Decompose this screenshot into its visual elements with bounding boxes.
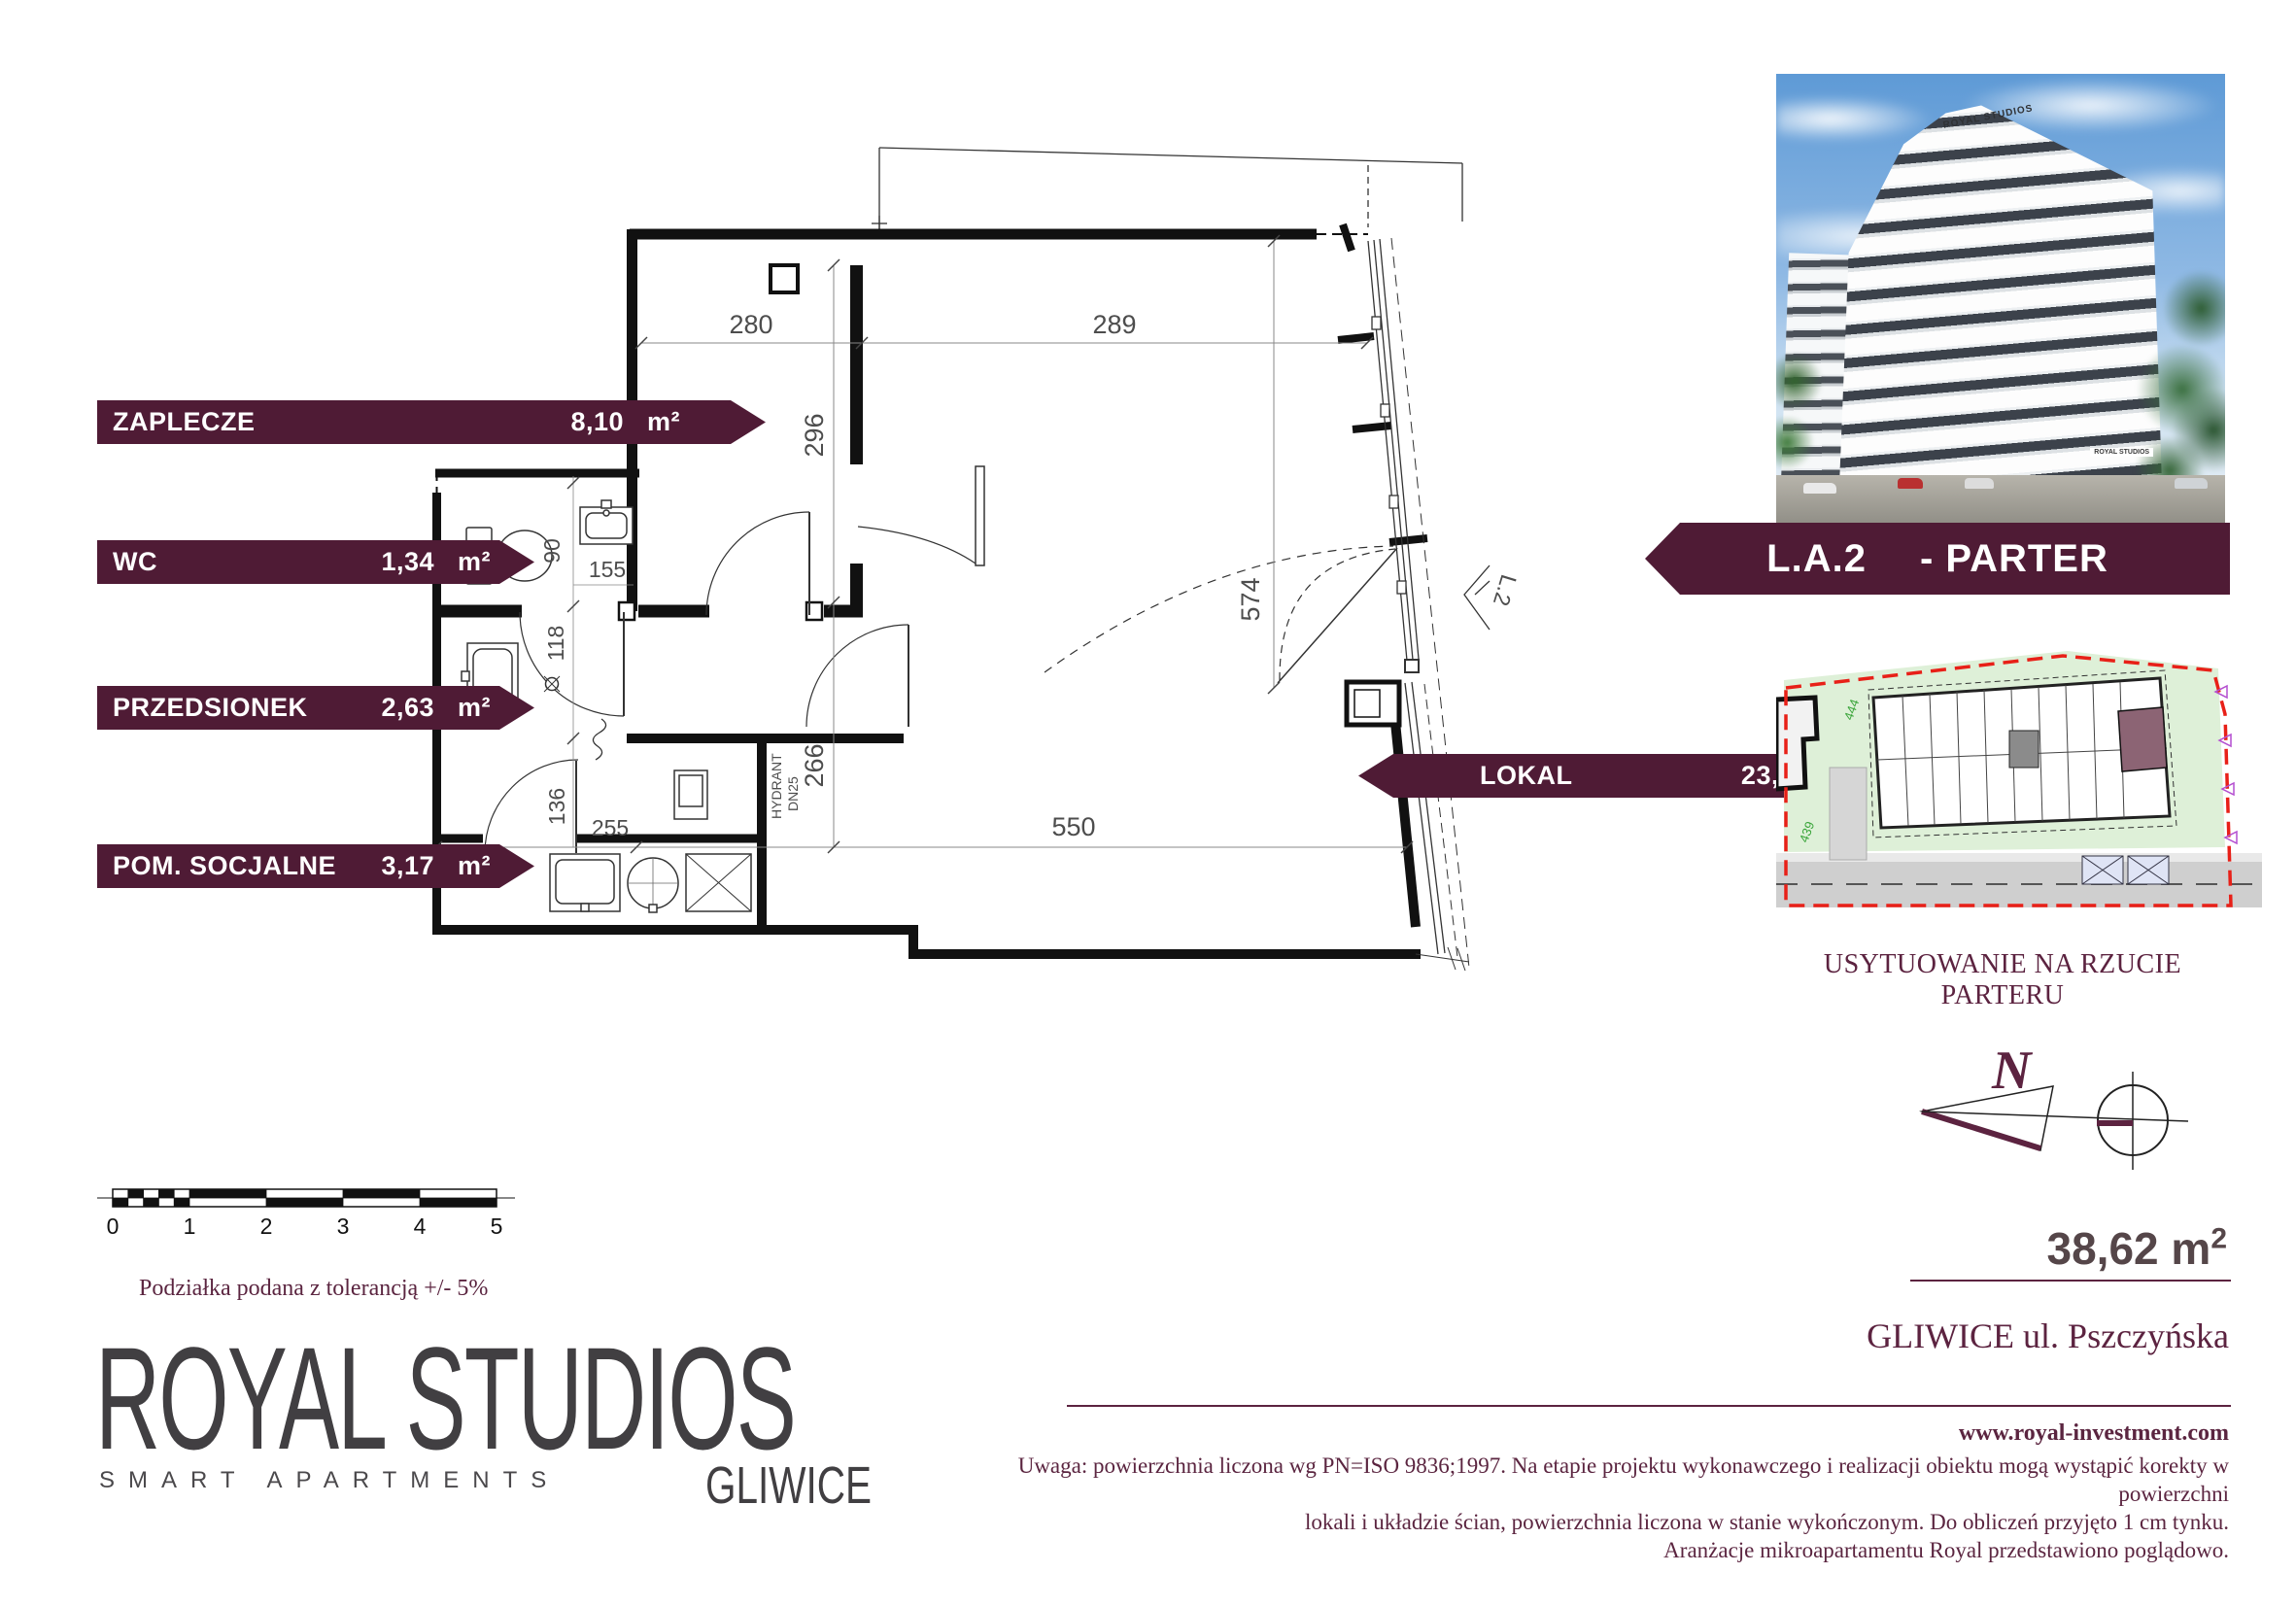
disclaimer-line: Uwaga: powierzchnia liczona wg PN=ISO 98…: [1005, 1452, 2229, 1508]
disclaimer-line: lokali i układzie ścian, powierzchnia li…: [1005, 1508, 2229, 1536]
floor-plan: 280 289 296 266 574 90 155 118 136 255 5…: [389, 126, 1603, 1001]
dim-118: 118: [543, 626, 568, 662]
room-label: ZAPLECZE: [97, 407, 256, 437]
scale-tick: 0: [107, 1214, 120, 1239]
tree: [1776, 335, 1830, 489]
trees: [2113, 241, 2226, 511]
entrance-marker: L.2: [1464, 565, 1522, 630]
room-unit: m²: [647, 407, 680, 437]
logo-tagline: SMART APARTMENTS: [99, 1467, 560, 1494]
dim-296: 296: [800, 413, 829, 457]
logo-royal-studios: ROYAL STUDIOS: [95, 1325, 795, 1471]
room-label: LOKAL: [1480, 761, 1572, 791]
dim-280: 280: [729, 310, 772, 339]
terrace-outline: [872, 148, 1462, 231]
pavement: [1776, 475, 2225, 525]
total-area-sup: 2: [2210, 1223, 2227, 1255]
room-area: 1,34: [381, 547, 434, 577]
glazing: [1368, 238, 1469, 971]
hydrant-size-label: DN25: [785, 776, 801, 811]
flyer-page: 280 289 296 266 574 90 155 118 136 255 5…: [0, 0, 2296, 1607]
entrance-label: L.2: [1489, 572, 1522, 609]
scale-tick: 4: [414, 1214, 427, 1239]
building-photo: ROYAL STUDIOS ROYAL STUDIOS: [1776, 74, 2225, 525]
address: GLIWICE ul. Pszczyńska: [1867, 1316, 2229, 1356]
disclaimer-line: Aranżacje mikroapartamentu Royal przedst…: [1005, 1536, 2229, 1564]
scale-tolerance-note: Podziałka podana z tolerancją +/- 5%: [139, 1276, 488, 1302]
website-link: www.royal-investment.com: [1959, 1420, 2229, 1447]
room-label: PRZEDSIONEK: [97, 693, 308, 723]
scale-bar: 0 1 2 3 4 5: [97, 1183, 515, 1253]
divider-line: [1067, 1405, 2231, 1407]
scale-bar-cells: [113, 1189, 497, 1207]
unit-banner: L.A.2 - PARTER: [1645, 523, 2230, 595]
scale-tick: 3: [337, 1214, 350, 1239]
room-area: 8,10: [570, 407, 624, 437]
dim-90: 90: [539, 538, 565, 564]
room-label: WC: [97, 547, 157, 577]
scale-tick: 5: [491, 1214, 503, 1239]
dim-155: 155: [589, 557, 626, 582]
dim-550: 550: [1051, 812, 1095, 841]
north-arrow: N: [1895, 1028, 2215, 1198]
room-unit: m²: [458, 851, 491, 881]
dim-574: 574: [1236, 577, 1265, 621]
total-area-value: 38,62 m: [2047, 1223, 2211, 1274]
car: [1898, 478, 1923, 489]
walls: [432, 224, 1427, 959]
site-plan: 444 439: [1776, 622, 2269, 928]
scale-bar-labels: 0 1 2 3 4 5: [107, 1214, 503, 1239]
room-label: POM. SOCJALNE: [97, 851, 336, 881]
room-unit: m²: [458, 693, 491, 723]
dim-289: 289: [1092, 310, 1136, 339]
dim-136: 136: [544, 788, 569, 825]
room-banner-przedsionek: PRZEDSIONEK 2,63 m²: [97, 686, 534, 730]
car: [1803, 483, 1836, 494]
divider-line: [1910, 1280, 2231, 1282]
room-banner-zaplecze: ZAPLECZE 8,10 m²: [97, 400, 766, 444]
total-area: 38,62 m2: [2047, 1222, 2227, 1275]
scale-tick: 2: [260, 1214, 273, 1239]
unit-code: L.A.2: [1766, 537, 1867, 581]
scale-tick: 1: [184, 1214, 196, 1239]
room-unit: m²: [458, 547, 491, 577]
highlighted-unit: [2118, 707, 2167, 771]
dim-266: 266: [800, 743, 829, 787]
disclaimer: Uwaga: powierzchnia liczona wg PN=ISO 98…: [1005, 1452, 2229, 1564]
room-banner-wc: WC 1,34 m²: [97, 540, 534, 584]
site-plan-caption: USYTUOWANIE NA RZUCIE PARTERU: [1778, 949, 2227, 1011]
building-sign-small: ROYAL STUDIOS: [2090, 448, 2153, 457]
room-banner-socjalne: POM. SOCJALNE 3,17 m²: [97, 844, 534, 888]
room-area: 2,63: [381, 693, 434, 723]
dim-255: 255: [592, 815, 629, 840]
unit-floor: - PARTER: [1920, 537, 2108, 581]
car: [1965, 478, 1994, 489]
hydrant-label: HYDRANT: [769, 753, 784, 819]
car: [2175, 478, 2208, 489]
logo-city: GLIWICE: [705, 1455, 872, 1516]
room-area: 3,17: [381, 851, 434, 881]
